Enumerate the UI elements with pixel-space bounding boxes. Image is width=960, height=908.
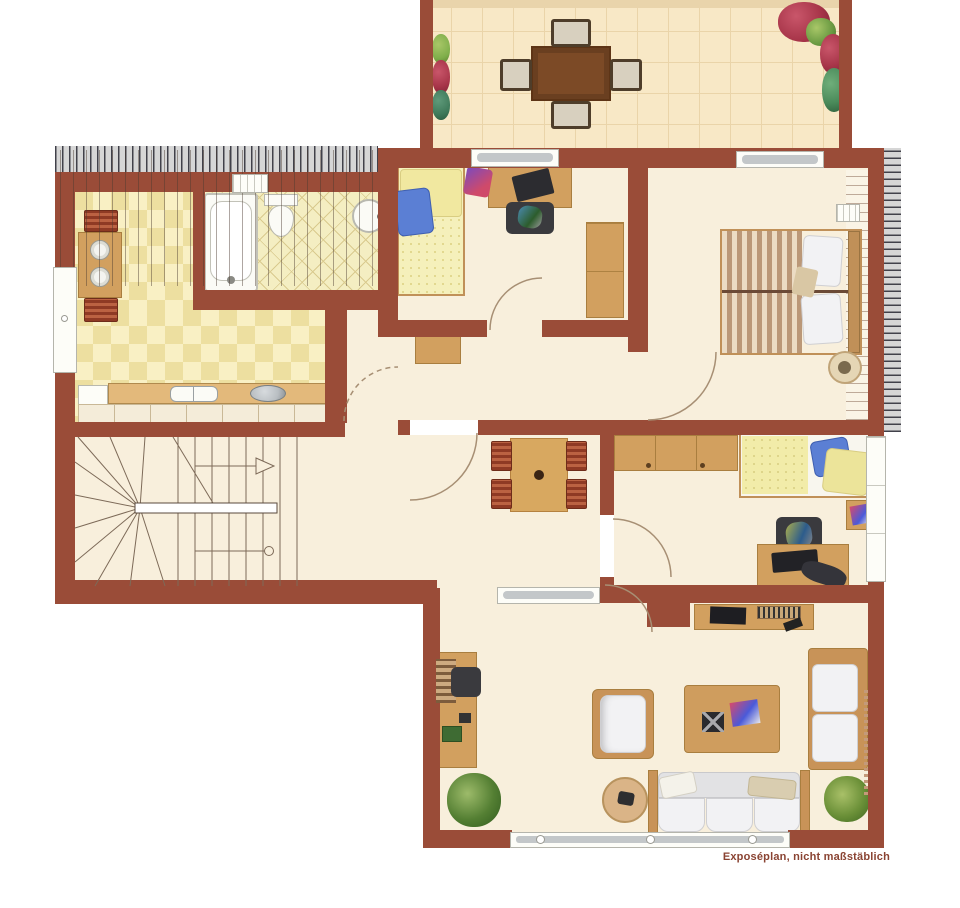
balcony-door-bedroom-top-bar xyxy=(477,153,553,162)
living-window-handle-1 xyxy=(536,835,545,844)
vertical-watermark xyxy=(864,690,868,795)
kitchen-window-handle xyxy=(61,315,68,322)
stairs-and-door-arcs xyxy=(0,0,960,908)
door-arc-bedroom-top xyxy=(490,278,542,330)
door-arc-master xyxy=(648,352,716,420)
stair-handrail xyxy=(135,503,277,513)
floor-plan: Exposéplan, nicht maßstäblich xyxy=(0,0,960,908)
door-arc-hallway xyxy=(410,433,477,500)
living-slider-door-bar xyxy=(503,591,594,599)
door-arc-living xyxy=(605,585,652,632)
stair-direction-arrow xyxy=(256,458,274,474)
living-window-handle-3 xyxy=(748,835,757,844)
plan-caption: Exposéplan, nicht maßstäblich xyxy=(560,851,890,867)
door-arc-bedroom-right xyxy=(613,519,671,577)
living-window-handle-2 xyxy=(646,835,655,844)
balcony-door-master-bar xyxy=(742,155,818,164)
door-arc-kitchen-dashed xyxy=(344,367,398,421)
